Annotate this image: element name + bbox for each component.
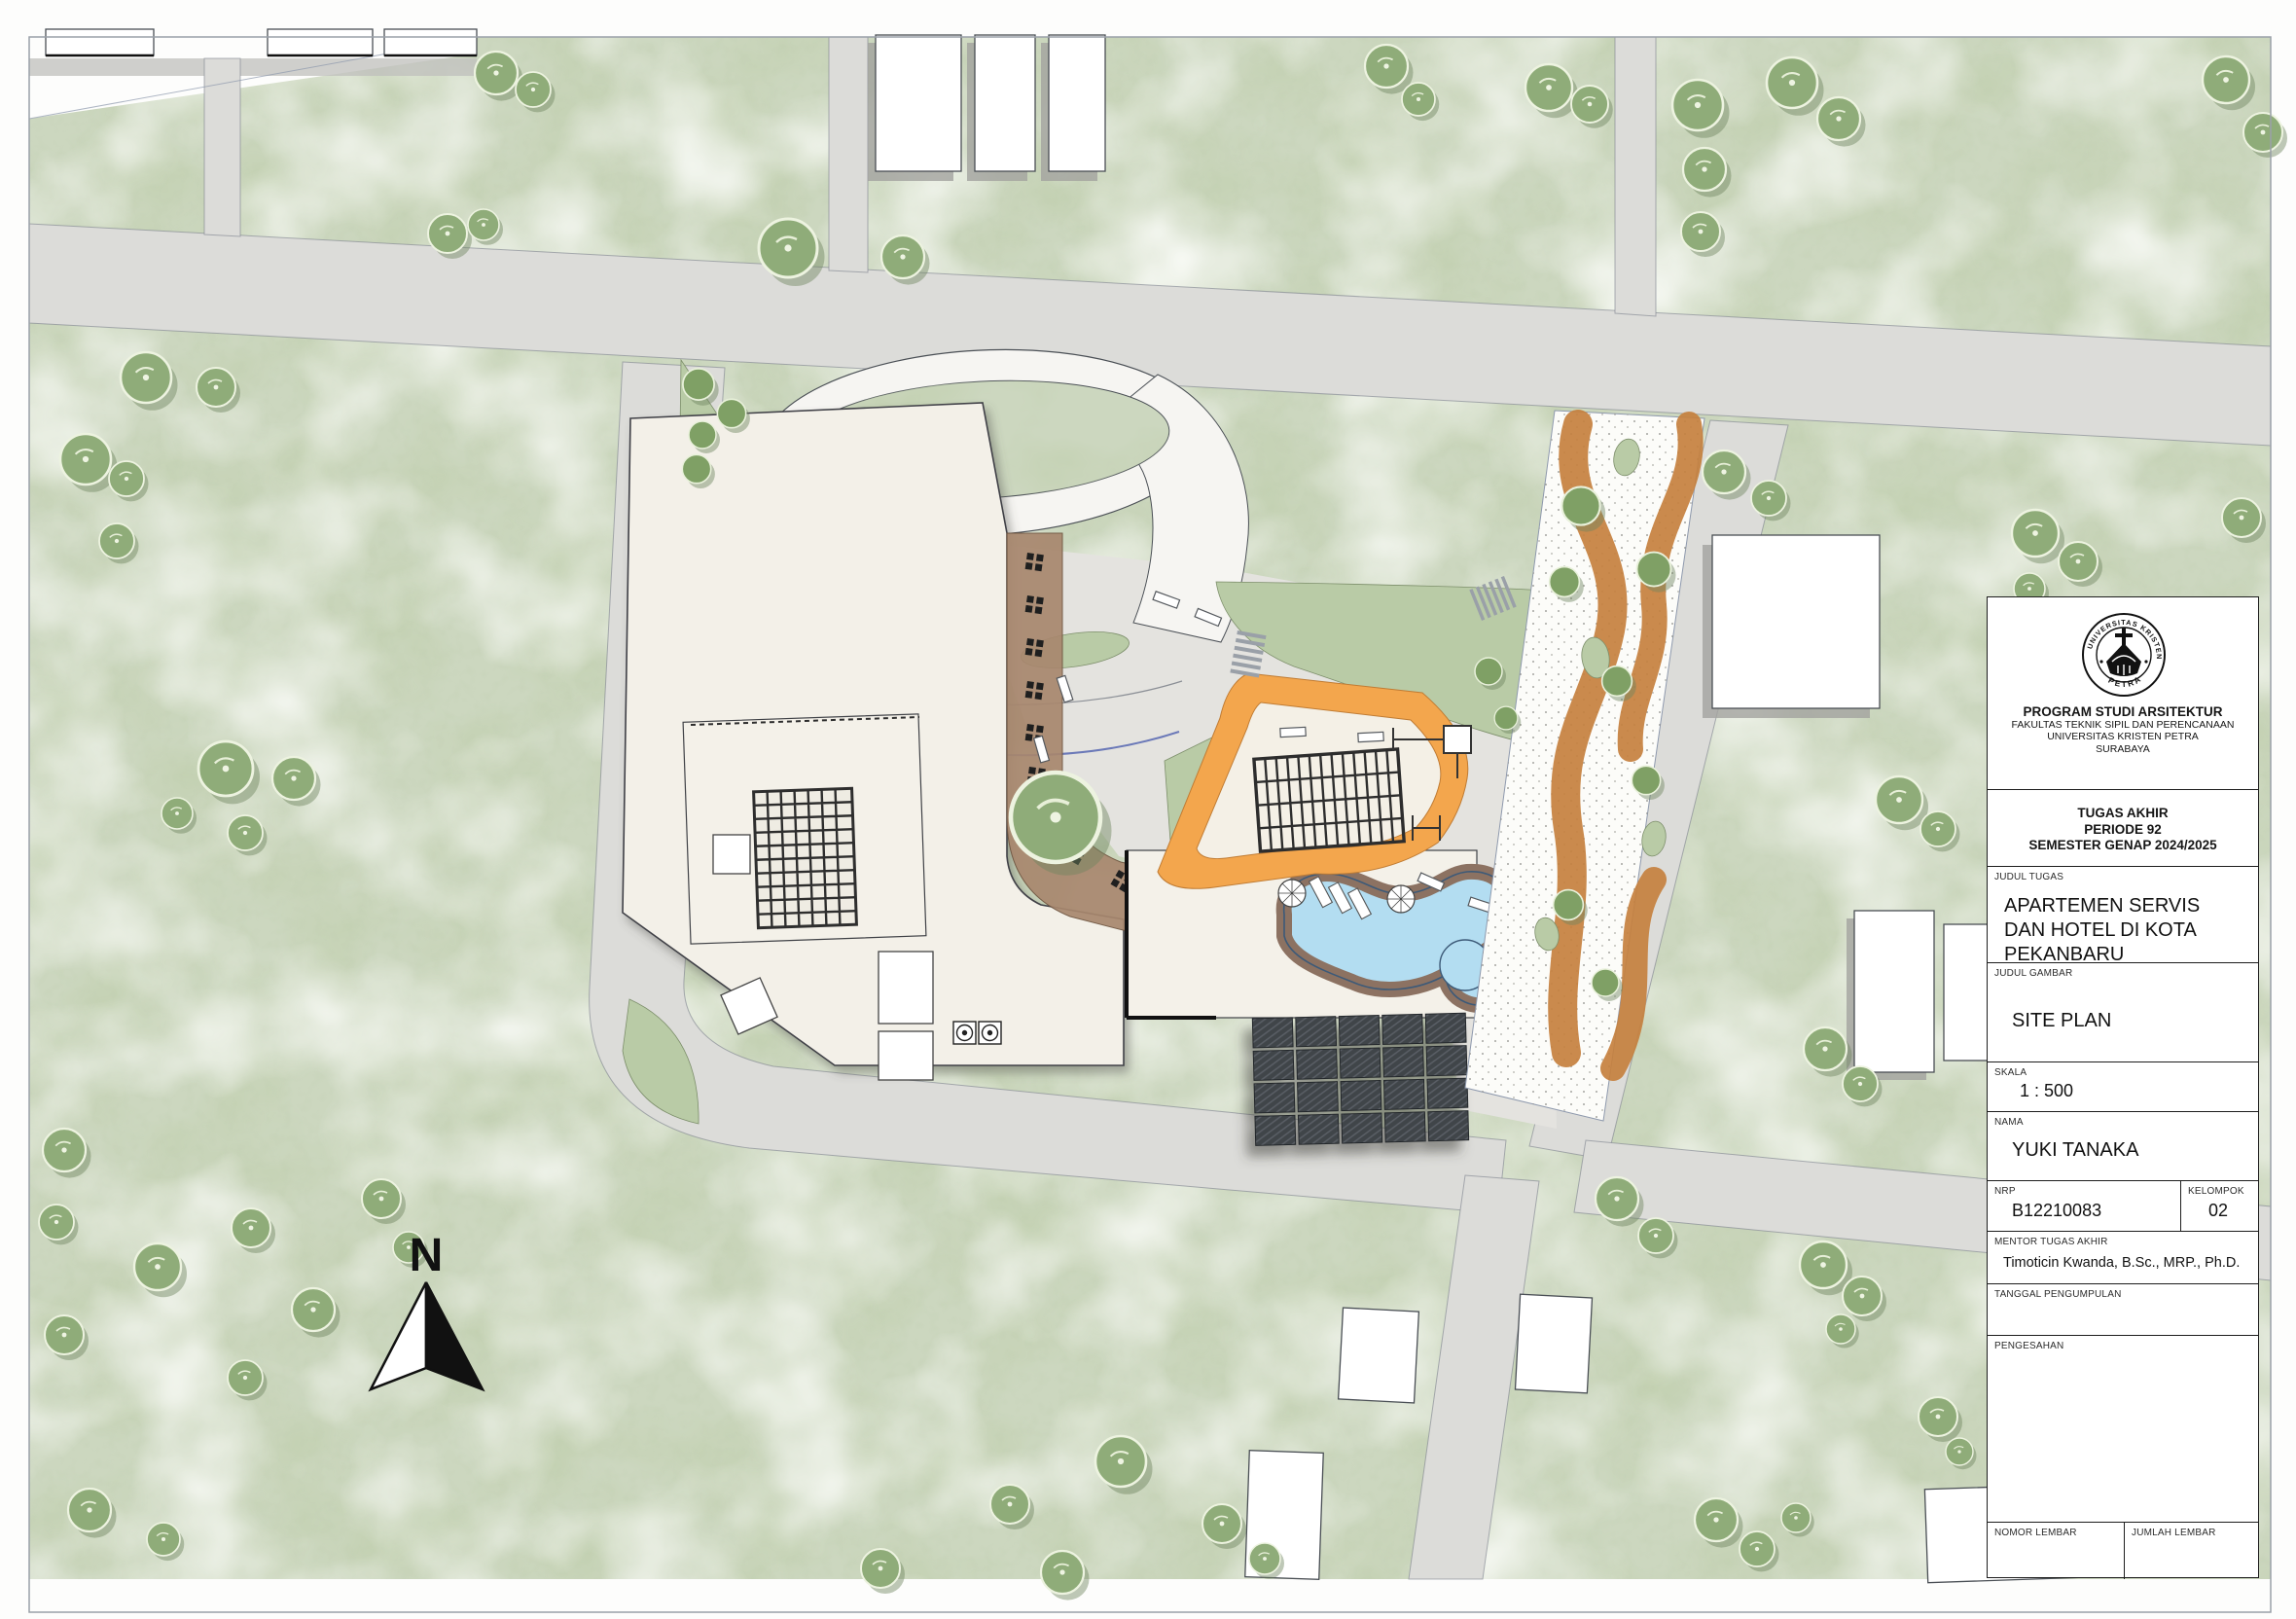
site-plan-drawing: N [0, 0, 2296, 1619]
program-name: PROGRAM STUDI ARSITEKTUR [1988, 706, 2258, 719]
jumlah-lembar-label: JUMLAH LEMBAR [2132, 1528, 2216, 1538]
project-line1: TUGAS AKHIR [1988, 806, 2258, 822]
road-top-east-vertical [1615, 37, 1656, 316]
tanggal-section: TANGGAL PENGUMPULAN [1988, 1283, 2258, 1335]
nama-label: NAMA [1994, 1117, 2024, 1128]
judul-tugas-label: JUDUL TUGAS [1994, 872, 2063, 882]
nrp-label: NRP [1994, 1186, 2016, 1197]
road-top-center-vertical [829, 37, 868, 272]
judul-tugas-line2: DAN HOTEL DI KOTA [2004, 918, 2200, 943]
drawing-title: SITE PLAN [2012, 1010, 2111, 1032]
scale-value: 1 : 500 [2020, 1081, 2073, 1101]
mentor-section: MENTOR TUGAS AKHIR Timoticin Kwanda, B.S… [1988, 1231, 2258, 1283]
sheet-margin-bottom [29, 1579, 2271, 1619]
institution-section: UNIVERSITAS KRISTEN PETRA PROGRAM STUDI … [1988, 597, 2258, 789]
north-label: N [410, 1230, 444, 1281]
judul-tugas-section: JUDUL TUGAS APARTEMEN SERVIS DAN HOTEL D… [1988, 866, 2258, 962]
mentor-label: MENTOR TUGAS AKHIR [1994, 1237, 2108, 1247]
jumlah-lembar-cell: JUMLAH LEMBAR [2124, 1523, 2261, 1579]
project-line3: SEMESTER GENAP 2024/2025 [1988, 838, 2258, 854]
judul-tugas-line1: APARTEMEN SERVIS [2004, 894, 2200, 918]
skala-label: SKALA [1994, 1067, 2027, 1078]
nama-section: NAMA YUKI TANAKA [1988, 1111, 2258, 1180]
city-name: SURABAYA [1988, 743, 2258, 756]
faculty-name: FAKULTAS TEKNIK SIPIL DAN PERENCANAAN [1988, 719, 2258, 732]
kelompok-cell: KELOMPOK 02 [2180, 1181, 2261, 1231]
judul-gambar-label: JUDUL GAMBAR [1994, 968, 2072, 979]
site-plan-sheet: N UNIVERSITAS KRISTEN PETRA [0, 0, 2296, 1619]
project-line2: PERIODE 92 [1988, 822, 2258, 839]
title-block: UNIVERSITAS KRISTEN PETRA PROGRAM STUDI … [1987, 596, 2259, 1578]
student-name: YUKI TANAKA [2012, 1139, 2138, 1162]
pengesahan-section: PENGESAHAN [1988, 1335, 2258, 1522]
tower-skylight-grid [754, 788, 857, 927]
top-center-buildings [868, 35, 1105, 181]
road-top-left-vertical [204, 58, 240, 236]
kelompok-label: KELOMPOK [2188, 1186, 2244, 1197]
university-name: UNIVERSITAS KRISTEN PETRA [1988, 731, 2258, 743]
sidewalk-top-left [29, 58, 477, 76]
lembar-section: NOMOR LEMBAR JUMLAH LEMBAR [1988, 1522, 2258, 1579]
pengesahan-label: PENGESAHAN [1994, 1341, 2063, 1351]
tanggal-label: TANGGAL PENGUMPULAN [1994, 1289, 2122, 1300]
judul-gambar-section: JUDUL GAMBAR SITE PLAN [1988, 962, 2258, 1061]
nrp-section: NRP B12210083 KELOMPOK 02 [1988, 1180, 2258, 1231]
project-section: TUGAS AKHIR PERIODE 92 SEMESTER GENAP 20… [1988, 789, 2258, 866]
mentor-name: Timoticin Kwanda, B.Sc., MRP., Ph.D. [2003, 1255, 2240, 1271]
nrp-value: B12210083 [2012, 1201, 2101, 1221]
nomor-lembar-label: NOMOR LEMBAR [1994, 1528, 2077, 1538]
kelompok-value: 02 [2208, 1201, 2228, 1221]
skala-section: SKALA 1 : 500 [1988, 1061, 2258, 1111]
university-logo: UNIVERSITAS KRISTEN PETRA [2080, 611, 2168, 699]
